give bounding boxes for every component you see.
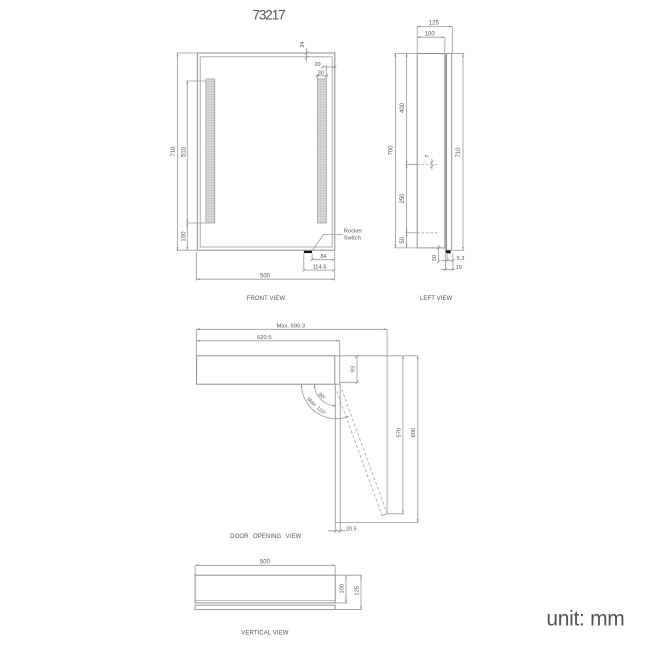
svg-text:7: 7 xyxy=(425,155,431,158)
svg-text:50: 50 xyxy=(432,255,438,261)
svg-text:114.5: 114.5 xyxy=(312,264,326,270)
svg-text:DOOR OPENING VIEW: DOOR OPENING VIEW xyxy=(230,534,301,540)
svg-text:500: 500 xyxy=(260,273,271,279)
svg-text:20: 20 xyxy=(314,62,320,68)
svg-text:Rocker: Rocker xyxy=(344,228,362,234)
svg-text:570: 570 xyxy=(396,428,402,438)
svg-text:400: 400 xyxy=(400,102,406,113)
svg-text:620.5: 620.5 xyxy=(257,335,272,341)
svg-text:VERTICAL VIEW: VERTICAL VIEW xyxy=(241,631,289,637)
svg-text:84: 84 xyxy=(320,254,326,260)
svg-text:73217: 73217 xyxy=(252,7,285,22)
svg-text:100: 100 xyxy=(181,231,187,242)
svg-text:700: 700 xyxy=(389,145,395,156)
svg-text:FRONT VIEW: FRONT VIEW xyxy=(247,296,286,302)
svg-text:unit: mm: unit: mm xyxy=(546,607,624,630)
svg-text:34: 34 xyxy=(300,41,306,47)
svg-text:100: 100 xyxy=(425,31,436,37)
svg-text:710: 710 xyxy=(456,147,462,158)
svg-text:125: 125 xyxy=(429,21,440,27)
svg-text:Switch: Switch xyxy=(344,235,361,241)
svg-text:19: 19 xyxy=(456,265,462,271)
svg-text:100: 100 xyxy=(339,584,345,594)
svg-text:20.5: 20.5 xyxy=(346,527,357,533)
svg-text:510: 510 xyxy=(181,146,187,157)
svg-text:710: 710 xyxy=(171,146,177,157)
svg-text:93: 93 xyxy=(350,366,356,372)
svg-text:90°: 90° xyxy=(317,392,327,402)
svg-text:30: 30 xyxy=(318,70,324,76)
svg-text:500: 500 xyxy=(260,560,271,566)
svg-text:250: 250 xyxy=(400,193,406,204)
svg-text:Max. 690.3: Max. 690.3 xyxy=(276,324,305,330)
svg-text:LEFT VIEW: LEFT VIEW xyxy=(420,296,453,302)
svg-text:5.3: 5.3 xyxy=(457,256,465,262)
svg-text:125: 125 xyxy=(354,586,360,596)
svg-text:600: 600 xyxy=(411,428,417,438)
svg-text:50: 50 xyxy=(400,236,406,243)
